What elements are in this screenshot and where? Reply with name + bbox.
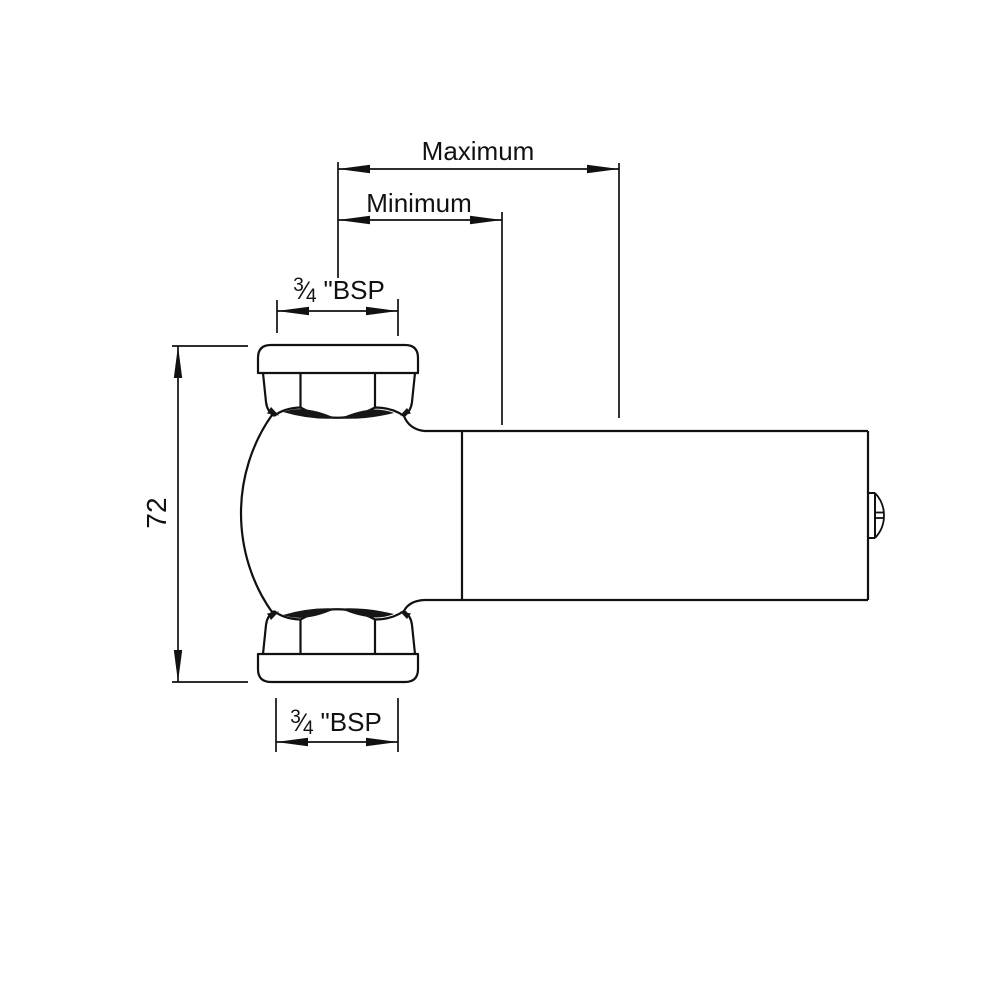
horizontal-barrel [424, 431, 868, 600]
arrowhead-up [174, 346, 182, 378]
arrowhead-left [338, 165, 370, 173]
bottom-union-nut [258, 608, 418, 682]
arrowhead-left [276, 738, 308, 746]
height-dimension-label: 72 [143, 497, 171, 528]
height-dimension [172, 346, 248, 682]
arrowhead-down [174, 650, 182, 682]
thread-size-label-bottom: 3⁄4"BSP [290, 709, 382, 739]
drawing-canvas: Maximum Minimum 3⁄4"BSP 3⁄4"BSP 72 [0, 0, 1000, 1000]
valve-outline [241, 345, 885, 682]
bottom-right-fillet [404, 600, 424, 611]
dimension-linework [172, 162, 619, 752]
valve-body-curve [241, 415, 272, 612]
end-screw-detail [868, 493, 885, 538]
thread-size-label-top: 3⁄4"BSP [293, 277, 385, 307]
maximum-dimension-label: Maximum [422, 138, 535, 164]
arrowhead-right [587, 165, 619, 173]
arrowhead-right [366, 307, 398, 315]
fraction-numerator: 3 [290, 707, 301, 728]
arrowhead-right [366, 738, 398, 746]
arrowhead-right [470, 216, 502, 224]
arrowhead-left [338, 216, 370, 224]
thread-standard-text: "BSP [324, 275, 385, 305]
top-right-fillet [404, 416, 424, 431]
thread-standard-text: "BSP [321, 707, 382, 737]
arrowhead-left [277, 307, 309, 315]
top-union-nut [258, 345, 418, 419]
minimum-dimension-label: Minimum [366, 190, 471, 216]
fraction-denominator: 4 [303, 718, 314, 739]
minimum-dimension [338, 212, 502, 425]
fraction-denominator: 4 [306, 286, 317, 307]
fraction-numerator: 3 [293, 275, 304, 296]
